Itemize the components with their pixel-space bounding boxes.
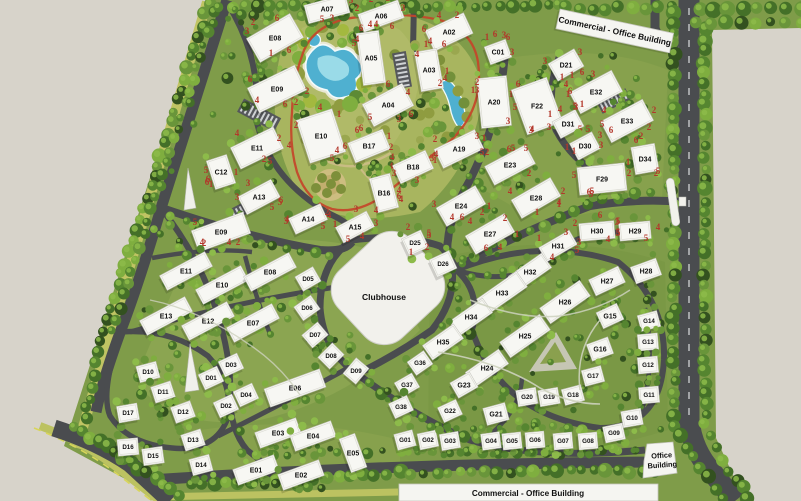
svg-text:5: 5 <box>511 143 516 153</box>
svg-text:E27: E27 <box>484 232 497 239</box>
svg-text:3: 3 <box>591 69 596 79</box>
svg-text:3: 3 <box>284 216 289 226</box>
svg-text:B17: B17 <box>363 144 376 151</box>
svg-text:1: 1 <box>387 131 392 141</box>
svg-text:2: 2 <box>480 207 485 217</box>
svg-text:1: 1 <box>485 32 490 42</box>
svg-text:1: 1 <box>269 48 274 58</box>
svg-text:6: 6 <box>609 125 614 135</box>
svg-text:4: 4 <box>235 128 240 138</box>
svg-text:1: 1 <box>337 109 342 119</box>
svg-text:1: 1 <box>572 146 577 156</box>
svg-text:D17: D17 <box>122 410 134 417</box>
svg-text:6: 6 <box>460 212 465 222</box>
svg-text:3: 3 <box>246 178 251 188</box>
svg-text:D10: D10 <box>142 369 154 376</box>
svg-text:3: 3 <box>430 153 435 163</box>
svg-text:G02: G02 <box>422 437 434 444</box>
svg-text:2: 2 <box>503 213 508 223</box>
svg-text:5: 5 <box>616 216 621 226</box>
svg-text:2: 2 <box>262 154 267 164</box>
svg-text:B18: B18 <box>407 165 420 172</box>
svg-text:2: 2 <box>305 86 310 96</box>
svg-text:2: 2 <box>627 168 632 178</box>
svg-text:5: 5 <box>586 124 591 134</box>
svg-text:1: 1 <box>234 167 239 177</box>
svg-text:3: 3 <box>475 131 480 141</box>
svg-text:1: 1 <box>409 247 414 257</box>
svg-text:G16: G16 <box>593 347 606 354</box>
svg-text:D06: D06 <box>301 305 313 312</box>
svg-text:2: 2 <box>639 131 644 141</box>
svg-text:E09: E09 <box>215 230 228 237</box>
svg-text:4: 4 <box>558 104 563 114</box>
svg-text:H33: H33 <box>496 291 509 298</box>
svg-text:6: 6 <box>422 24 427 34</box>
svg-text:G14: G14 <box>643 318 655 325</box>
svg-text:E08: E08 <box>264 270 277 277</box>
svg-text:Clubhouse: Clubhouse <box>362 292 406 302</box>
svg-text:E02: E02 <box>295 473 308 480</box>
svg-text:4: 4 <box>360 231 365 241</box>
svg-text:E28: E28 <box>530 196 543 203</box>
svg-text:6: 6 <box>507 144 512 154</box>
svg-text:5: 5 <box>656 166 661 176</box>
svg-text:G01: G01 <box>399 437 411 444</box>
svg-text:6: 6 <box>359 123 364 133</box>
svg-text:D34: D34 <box>639 157 652 164</box>
svg-text:D31: D31 <box>562 122 575 129</box>
svg-text:1: 1 <box>548 109 553 119</box>
svg-text:H29: H29 <box>629 229 642 236</box>
svg-text:3: 3 <box>547 122 552 132</box>
svg-text:D09: D09 <box>350 368 362 375</box>
svg-text:6: 6 <box>343 141 348 151</box>
svg-text:F29: F29 <box>596 177 608 184</box>
svg-text:E09: E09 <box>271 87 284 94</box>
svg-text:H28: H28 <box>640 269 653 276</box>
svg-text:H27: H27 <box>601 279 614 286</box>
svg-text:6: 6 <box>409 109 414 119</box>
svg-text:G04: G04 <box>485 438 497 445</box>
svg-text:G10: G10 <box>626 415 638 422</box>
svg-text:G08: G08 <box>582 438 594 445</box>
svg-text:G12: G12 <box>642 362 654 369</box>
svg-text:D01: D01 <box>205 375 217 382</box>
svg-text:A03: A03 <box>423 68 436 75</box>
svg-text:E24: E24 <box>455 204 468 211</box>
svg-text:5: 5 <box>320 14 325 24</box>
svg-text:G05: G05 <box>506 438 518 445</box>
svg-text:3: 3 <box>245 26 250 36</box>
svg-text:C01: C01 <box>492 50 505 57</box>
svg-text:A14: A14 <box>302 217 315 224</box>
svg-text:2: 2 <box>485 147 490 157</box>
svg-text:4: 4 <box>498 242 503 252</box>
svg-text:E08: E08 <box>269 36 282 43</box>
svg-text:4: 4 <box>550 252 555 262</box>
svg-text:5: 5 <box>644 233 649 243</box>
svg-text:2: 2 <box>647 122 652 132</box>
svg-text:2: 2 <box>389 142 394 152</box>
svg-text:4: 4 <box>656 222 661 232</box>
svg-text:5: 5 <box>386 0 391 3</box>
svg-text:1: 1 <box>557 199 562 209</box>
svg-text:3: 3 <box>577 237 582 247</box>
svg-text:3: 3 <box>475 85 480 95</box>
svg-text:1: 1 <box>535 207 540 217</box>
svg-text:4: 4 <box>450 212 455 222</box>
svg-text:G17: G17 <box>587 373 599 380</box>
svg-text:G23: G23 <box>457 383 470 390</box>
svg-text:D02: D02 <box>220 403 232 410</box>
svg-text:B16: B16 <box>378 191 391 198</box>
svg-text:2: 2 <box>425 242 430 252</box>
svg-text:6: 6 <box>587 187 592 197</box>
svg-text:5: 5 <box>600 119 605 129</box>
svg-text:E01: E01 <box>250 468 263 475</box>
svg-text:G13: G13 <box>642 339 654 346</box>
svg-text:6: 6 <box>390 21 395 31</box>
svg-text:5: 5 <box>427 228 432 238</box>
svg-text:5: 5 <box>368 112 373 122</box>
svg-text:A13: A13 <box>253 195 266 202</box>
svg-text:3: 3 <box>392 168 397 178</box>
svg-text:A02: A02 <box>443 30 456 37</box>
svg-text:1: 1 <box>566 89 571 99</box>
svg-text:3: 3 <box>506 116 511 126</box>
svg-text:2: 2 <box>573 218 578 228</box>
svg-text:H34: H34 <box>465 315 478 322</box>
svg-text:4: 4 <box>564 79 569 89</box>
svg-text:3: 3 <box>432 199 437 209</box>
svg-text:3: 3 <box>349 0 354 5</box>
svg-text:4: 4 <box>428 36 433 46</box>
svg-text:D30: D30 <box>579 144 592 151</box>
svg-text:2: 2 <box>406 222 411 232</box>
svg-text:E07: E07 <box>247 321 260 328</box>
svg-text:D14: D14 <box>195 462 207 469</box>
svg-text:G03: G03 <box>444 438 456 445</box>
svg-text:6: 6 <box>580 67 585 77</box>
svg-text:G36: G36 <box>414 360 426 367</box>
svg-text:G11: G11 <box>643 392 655 399</box>
svg-text:G15: G15 <box>603 314 616 321</box>
svg-text:3: 3 <box>578 47 583 57</box>
svg-text:4: 4 <box>318 102 323 112</box>
svg-text:5: 5 <box>193 217 198 227</box>
svg-text:6: 6 <box>283 99 288 109</box>
svg-text:4: 4 <box>606 234 611 244</box>
svg-text:H26: H26 <box>559 300 572 307</box>
svg-text:4: 4 <box>468 216 473 226</box>
svg-text:3: 3 <box>235 192 240 202</box>
svg-text:G19: G19 <box>543 394 555 401</box>
svg-text:2: 2 <box>433 134 438 144</box>
svg-text:5: 5 <box>270 202 275 212</box>
svg-text:D11: D11 <box>157 389 169 396</box>
svg-text:H25: H25 <box>519 334 532 341</box>
svg-text:4: 4 <box>374 19 379 29</box>
svg-text:6: 6 <box>598 210 603 220</box>
svg-text:2: 2 <box>369 0 374 4</box>
svg-text:A19: A19 <box>453 147 466 154</box>
svg-text:6: 6 <box>516 79 521 89</box>
svg-text:6: 6 <box>506 32 511 42</box>
svg-text:E10: E10 <box>315 134 328 141</box>
svg-text:3: 3 <box>401 3 406 13</box>
svg-text:E10: E10 <box>216 283 229 290</box>
svg-text:3: 3 <box>415 175 420 185</box>
svg-text:1: 1 <box>626 157 631 167</box>
svg-text:6: 6 <box>359 23 364 33</box>
svg-text:3: 3 <box>510 47 515 57</box>
svg-text:1: 1 <box>487 201 492 211</box>
svg-text:A04: A04 <box>382 103 395 110</box>
svg-text:6: 6 <box>484 243 489 253</box>
svg-text:6: 6 <box>493 29 498 39</box>
svg-text:2: 2 <box>236 237 241 247</box>
svg-text:E03: E03 <box>272 431 285 438</box>
svg-text:G09: G09 <box>608 430 620 437</box>
svg-text:1: 1 <box>570 70 575 80</box>
svg-text:4: 4 <box>443 73 448 83</box>
svg-text:4: 4 <box>415 49 420 59</box>
svg-text:2: 2 <box>527 168 532 178</box>
svg-text:4: 4 <box>602 105 607 115</box>
svg-text:D04: D04 <box>240 392 252 399</box>
svg-text:4: 4 <box>437 10 442 20</box>
svg-text:H24: H24 <box>481 366 494 373</box>
svg-text:E33: E33 <box>621 119 634 126</box>
svg-text:3: 3 <box>598 130 603 140</box>
svg-text:1: 1 <box>515 229 520 239</box>
svg-text:5: 5 <box>204 165 209 175</box>
svg-text:6: 6 <box>279 195 284 205</box>
svg-text:H30: H30 <box>591 229 604 236</box>
svg-text:2: 2 <box>652 105 657 115</box>
svg-text:G38: G38 <box>395 404 407 411</box>
svg-text:D08: D08 <box>325 353 337 360</box>
svg-text:6: 6 <box>287 45 292 55</box>
svg-text:3: 3 <box>529 125 534 135</box>
svg-text:3: 3 <box>599 140 604 150</box>
svg-text:D13: D13 <box>187 437 199 444</box>
svg-text:1: 1 <box>565 142 570 152</box>
svg-text:2: 2 <box>561 186 566 196</box>
svg-text:G18: G18 <box>567 392 579 399</box>
svg-text:Commercial - Office Building: Commercial - Office Building <box>472 489 584 498</box>
svg-text:2: 2 <box>277 133 282 143</box>
svg-text:H35: H35 <box>437 340 450 347</box>
svg-text:3: 3 <box>564 227 569 237</box>
svg-text:6: 6 <box>205 177 210 187</box>
svg-text:H31: H31 <box>552 244 565 251</box>
svg-text:1: 1 <box>537 233 542 243</box>
svg-text:5: 5 <box>341 0 346 1</box>
svg-text:C12: C12 <box>215 170 228 177</box>
svg-text:6: 6 <box>386 79 391 89</box>
svg-text:6: 6 <box>248 74 253 84</box>
svg-text:A05: A05 <box>365 56 378 63</box>
svg-text:D05: D05 <box>302 276 314 283</box>
svg-text:6: 6 <box>275 13 280 23</box>
svg-text:E23: E23 <box>504 163 517 170</box>
svg-text:3: 3 <box>397 114 402 124</box>
svg-text:1: 1 <box>424 39 429 49</box>
svg-text:G20: G20 <box>521 394 533 401</box>
svg-text:F22: F22 <box>531 104 543 111</box>
svg-text:1: 1 <box>471 85 476 95</box>
svg-text:4: 4 <box>227 237 232 247</box>
svg-text:5: 5 <box>513 102 518 112</box>
svg-text:D16: D16 <box>122 444 134 451</box>
svg-text:E11: E11 <box>251 146 263 153</box>
svg-text:5: 5 <box>321 221 326 231</box>
svg-text:G06: G06 <box>529 437 541 444</box>
svg-text:5: 5 <box>268 156 273 166</box>
svg-text:A20: A20 <box>488 100 501 107</box>
svg-text:E11: E11 <box>180 269 192 276</box>
svg-text:H32: H32 <box>524 270 537 277</box>
svg-text:4: 4 <box>374 205 379 215</box>
svg-text:2: 2 <box>455 10 460 20</box>
svg-text:4: 4 <box>406 87 411 97</box>
svg-text:D21: D21 <box>560 63 573 70</box>
svg-text:4: 4 <box>287 140 292 150</box>
svg-text:2: 2 <box>325 207 330 217</box>
svg-text:5: 5 <box>524 143 529 153</box>
svg-text:D07: D07 <box>309 332 321 339</box>
svg-text:G07: G07 <box>557 438 569 445</box>
svg-text:G22: G22 <box>444 408 456 415</box>
svg-text:3: 3 <box>330 13 335 23</box>
svg-text:1: 1 <box>482 133 487 143</box>
svg-text:E13: E13 <box>160 314 173 321</box>
svg-text:5: 5 <box>572 170 577 180</box>
svg-text:5: 5 <box>346 234 351 244</box>
svg-text:2: 2 <box>355 3 360 13</box>
svg-text:G21: G21 <box>489 412 502 419</box>
svg-text:4: 4 <box>335 145 340 155</box>
svg-text:E32: E32 <box>590 90 603 97</box>
svg-text:2: 2 <box>294 97 299 107</box>
svg-text:3: 3 <box>354 204 359 214</box>
svg-text:4: 4 <box>368 19 373 29</box>
svg-text:6: 6 <box>442 39 447 49</box>
svg-text:4: 4 <box>355 34 360 44</box>
svg-text:3: 3 <box>543 56 548 66</box>
svg-text:2: 2 <box>251 17 256 27</box>
svg-text:1: 1 <box>333 219 338 229</box>
svg-text:2: 2 <box>294 120 299 130</box>
svg-text:3: 3 <box>574 102 579 112</box>
svg-text:5: 5 <box>616 227 621 237</box>
svg-text:E05: E05 <box>347 451 360 458</box>
svg-text:D12: D12 <box>177 409 189 416</box>
svg-text:1: 1 <box>580 99 585 109</box>
svg-text:D03: D03 <box>225 362 237 369</box>
svg-text:D26: D26 <box>437 261 449 268</box>
svg-text:4: 4 <box>255 95 260 105</box>
svg-text:4: 4 <box>397 185 402 195</box>
svg-text:4: 4 <box>508 186 513 196</box>
svg-text:E04: E04 <box>307 434 320 441</box>
svg-text:D15: D15 <box>147 453 159 460</box>
svg-text:3: 3 <box>374 218 379 228</box>
